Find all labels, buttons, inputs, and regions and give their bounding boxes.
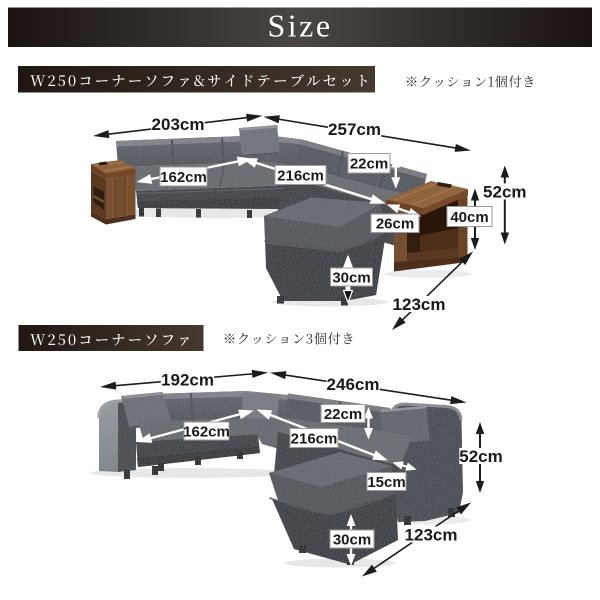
svg-text:203cm: 203cm: [152, 115, 205, 134]
svg-text:123cm: 123cm: [393, 295, 446, 314]
svg-text:52cm: 52cm: [483, 183, 526, 202]
svg-text:30cm: 30cm: [333, 531, 371, 548]
svg-text:30cm: 30cm: [332, 269, 370, 286]
svg-text:246cm: 246cm: [327, 375, 380, 394]
svg-text:257cm: 257cm: [328, 120, 381, 139]
svg-text:123cm: 123cm: [405, 526, 458, 545]
svg-text:216cm: 216cm: [291, 430, 338, 447]
svg-text:26cm: 26cm: [376, 216, 414, 233]
svg-text:Size: Size: [267, 8, 332, 44]
svg-text:216cm: 216cm: [277, 167, 324, 184]
svg-text:52cm: 52cm: [459, 447, 502, 466]
svg-text:40cm: 40cm: [450, 209, 488, 226]
svg-text:22cm: 22cm: [350, 156, 388, 173]
svg-text:162cm: 162cm: [160, 169, 207, 186]
svg-text:162cm: 162cm: [183, 423, 230, 440]
svg-text:15cm: 15cm: [367, 474, 405, 491]
svg-text:192cm: 192cm: [161, 371, 214, 390]
svg-text:22cm: 22cm: [324, 406, 362, 423]
